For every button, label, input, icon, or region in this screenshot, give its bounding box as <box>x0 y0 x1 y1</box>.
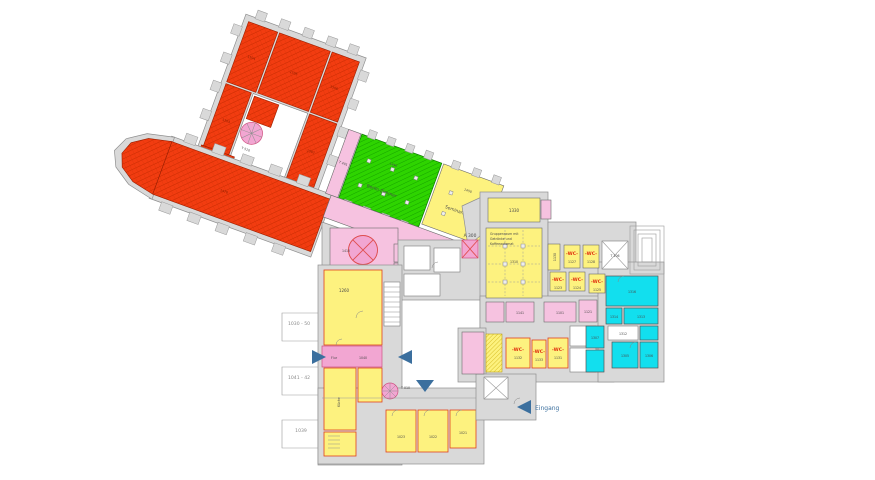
cyan-room <box>640 326 658 340</box>
dimension-brackets: 1030 - 50 1041 - 42 1039 <box>282 313 318 448</box>
wc-number: 1131 <box>554 356 562 360</box>
cyan-room <box>586 350 604 372</box>
room-label: 1260 <box>339 288 350 293</box>
dimension-label: 1041 - 42 <box>288 375 310 381</box>
wc-rooms-middle: -WC- -WC- -WC- 1123 1124 1125 <box>550 272 605 293</box>
gruppenraum-number: 1310 <box>510 260 518 264</box>
wc-label: -WC- <box>533 349 545 355</box>
a300-label: A 300 <box>464 233 477 239</box>
room-label: 1306 <box>645 354 653 358</box>
room-label: 1305 <box>621 354 629 358</box>
room-label: 1121 <box>584 310 592 314</box>
room-label: 1141 <box>516 311 524 315</box>
wc-label: -WC- <box>552 277 564 283</box>
room-label: 1021 <box>459 431 467 435</box>
straight-stair <box>384 282 400 326</box>
room-label: 1314 <box>610 315 618 319</box>
room-label: 1316 <box>628 290 636 294</box>
dimension-label: 1039 <box>295 428 307 434</box>
wc-label: -WC- <box>585 251 597 257</box>
wc-number: 1127 <box>568 260 576 264</box>
eingang-label: Eingang <box>535 405 560 412</box>
ramp <box>486 334 502 372</box>
flur-1040: Flur 1040 <box>322 346 382 367</box>
kueche-label: Küche <box>337 397 341 407</box>
gruppenraum-1310: Gruppenraum mit Getränke und Kaffeeautom… <box>486 228 542 298</box>
stair-t106: T 106 <box>602 241 628 269</box>
wc-label: -WC- <box>552 347 564 353</box>
flur-number: 1040 <box>359 356 367 360</box>
wc-label: -WC- <box>591 279 603 285</box>
wc-label: -WC- <box>566 251 578 257</box>
gruppenraum-line1: Gruppenraum mit <box>490 232 519 236</box>
flur-label: Flur <box>331 356 338 360</box>
room-label: 1312 <box>619 332 627 336</box>
room-label: 1023 <box>397 435 405 439</box>
stair-label-t106: T 106 <box>609 254 619 258</box>
wc-number: 1133 <box>535 358 543 362</box>
room-label: 1307 <box>591 336 599 340</box>
wc-label: -WC- <box>571 277 583 283</box>
wc-label: -WC- <box>512 347 524 353</box>
wc-number: 1123 <box>554 286 562 290</box>
floor-plan-svg: 1504 1505 1506 1503 1507 T 510 1470 <box>0 0 875 480</box>
room-label: 1330 <box>509 208 520 213</box>
room-label: 1101 <box>556 311 564 315</box>
room-label: 1130 <box>553 253 557 261</box>
room-label: 1022 <box>429 435 437 439</box>
junction-number: 1410 <box>342 249 350 253</box>
room-1260 <box>324 270 382 345</box>
wc-number: 1125 <box>593 288 601 292</box>
dimension-label: 1030 - 50 <box>288 321 310 327</box>
stair-label-t010: T 010 <box>400 386 410 390</box>
gruppenraum-line3: Kaffeeautomat <box>490 242 514 246</box>
floor-plan-page: 1504 1505 1506 1503 1507 T 510 1470 <box>0 0 875 480</box>
gruppenraum-line2: Getränke und <box>490 237 512 241</box>
room-label: 1313 <box>637 315 645 319</box>
wc-number: 1124 <box>573 286 581 290</box>
wc-number: 1128 <box>587 260 595 264</box>
pink-sliver <box>541 200 551 219</box>
wc-number: 1132 <box>514 356 522 360</box>
